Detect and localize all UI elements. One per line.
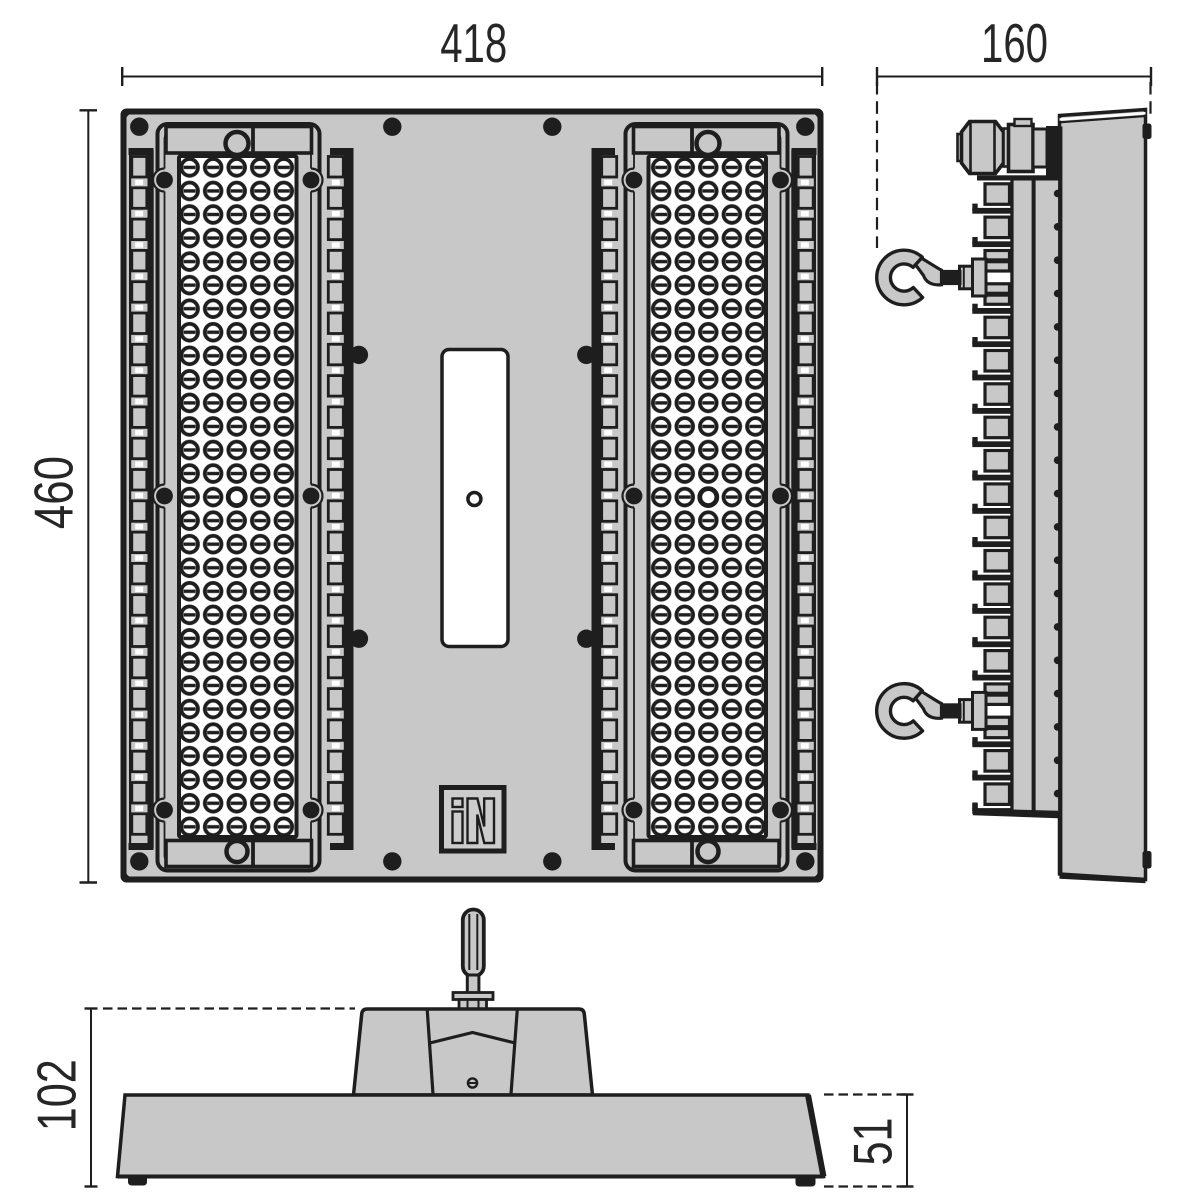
svg-text:51: 51 xyxy=(842,1118,904,1166)
svg-text:460: 460 xyxy=(22,456,84,529)
svg-text:160: 160 xyxy=(981,12,1048,74)
svg-text:418: 418 xyxy=(440,12,507,74)
svg-text:102: 102 xyxy=(26,1059,88,1131)
